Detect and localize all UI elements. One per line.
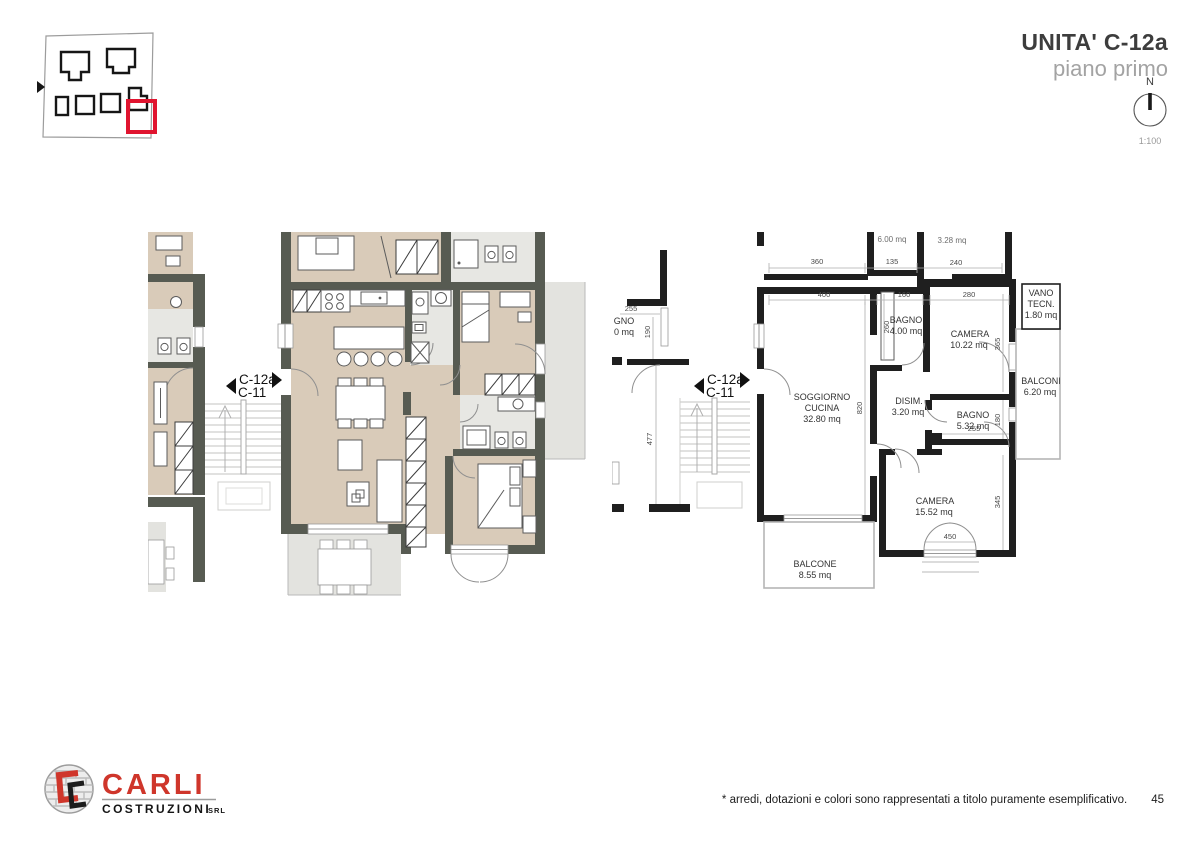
room-bagno1-line1: BAGNO bbox=[890, 315, 923, 325]
room-disim-line1: DISIM. bbox=[895, 396, 923, 406]
dim-820: 820 bbox=[855, 402, 864, 415]
dim-365: 365 bbox=[993, 338, 1002, 351]
arrow-right-icon bbox=[272, 372, 282, 388]
dim-400: 400 bbox=[818, 290, 831, 299]
room-camera1-area: 10.22 mq bbox=[950, 340, 988, 350]
key-plan-boundary bbox=[43, 33, 153, 138]
stairwell-right bbox=[680, 398, 750, 508]
clipped-area-label-1: 6.00 mq bbox=[878, 235, 907, 244]
room-balconi-area: 6.20 mq bbox=[1024, 387, 1057, 397]
dim-240: 240 bbox=[950, 258, 963, 267]
clipped-room-area: 0 mq bbox=[614, 327, 634, 337]
dim-450: 450 bbox=[944, 532, 957, 541]
dim-190: 190 bbox=[643, 326, 652, 339]
floorplan-dimensioned: 360 135 240 400 160 280 820 260 365 180 … bbox=[612, 232, 1092, 604]
north-compass-icon bbox=[1122, 88, 1178, 128]
room-camera1-line1: CAMERA bbox=[951, 329, 990, 339]
unit-labels-left-plan: C-12a C-11 bbox=[226, 372, 282, 400]
footer: * arredi, dotazioni e colori sono rappre… bbox=[722, 794, 1164, 806]
scale-label: 1:100 bbox=[1122, 136, 1178, 146]
room-bagno2-line1: BAGNO bbox=[957, 410, 990, 420]
dim-477: 477 bbox=[645, 433, 654, 446]
floorplan-furnished: C-12a C-11 bbox=[148, 232, 588, 604]
clipped-area-label-2: 3.28 mq bbox=[938, 236, 967, 245]
room-soggiorno-area: 32.80 mq bbox=[803, 414, 841, 424]
room-soggiorno-line2: CUCINA bbox=[805, 403, 840, 413]
north-label: N bbox=[1122, 76, 1178, 88]
arrow-left-icon bbox=[694, 378, 704, 394]
carli-logo-icon: CARLI COSTRUZIONI SRL bbox=[42, 760, 272, 822]
neighbor-label: C-11 bbox=[238, 385, 266, 400]
dim-345: 345 bbox=[993, 496, 1002, 509]
dim-255a: 255 bbox=[625, 304, 638, 313]
dim-360: 360 bbox=[811, 257, 824, 266]
page-number: 45 bbox=[1151, 794, 1164, 806]
room-camera2-area: 15.52 mq bbox=[915, 507, 953, 517]
stairwell bbox=[205, 400, 281, 510]
dim-180: 180 bbox=[993, 414, 1002, 427]
room-disim-area: 3.20 mq bbox=[892, 407, 925, 417]
balcony-furniture bbox=[318, 540, 371, 594]
logo-subtitle: COSTRUZIONI bbox=[102, 802, 211, 816]
room-camera2-line1: CAMERA bbox=[916, 496, 955, 506]
room-balcone-line1: BALCONE bbox=[793, 559, 836, 569]
room-balcone-area: 8.55 mq bbox=[799, 570, 832, 580]
dim-135: 135 bbox=[886, 257, 899, 266]
logo-name: CARLI bbox=[102, 769, 206, 801]
north-indicator: N 1:100 bbox=[1122, 76, 1178, 146]
disclaimer-text: * arredi, dotazioni e colori sono rappre… bbox=[722, 794, 1127, 806]
room-soggiorno-line1: SOGGIORNO bbox=[794, 392, 851, 402]
room-balconi-line1: BALCONI bbox=[1021, 376, 1061, 386]
clipped-room-label: GNO bbox=[614, 316, 635, 326]
room-bagno1-area: 4.00 mq bbox=[890, 326, 923, 336]
unit-labels-right-plan: C-12a C-11 bbox=[694, 372, 750, 400]
room-vano-line2: TECN. bbox=[1028, 299, 1055, 309]
dining-furniture bbox=[336, 378, 385, 428]
arrow-right-icon bbox=[740, 372, 750, 388]
neighbor-label: C-11 bbox=[706, 385, 734, 400]
room-vano-line1: VANO bbox=[1029, 288, 1054, 298]
dim-160: 160 bbox=[898, 290, 911, 299]
room-bagno2-area: 5.32 mq bbox=[957, 421, 990, 431]
page-title: UNITA' C-12a bbox=[1021, 28, 1168, 56]
key-plan bbox=[26, 24, 176, 154]
company-logo: CARLI COSTRUZIONI SRL bbox=[42, 760, 272, 827]
arrow-left-icon bbox=[226, 378, 236, 394]
dim-280: 280 bbox=[963, 290, 976, 299]
logo-srl: SRL bbox=[208, 806, 226, 815]
title-block: UNITA' C-12a piano primo bbox=[1021, 28, 1168, 83]
room-vano-area: 1.80 mq bbox=[1025, 310, 1058, 320]
